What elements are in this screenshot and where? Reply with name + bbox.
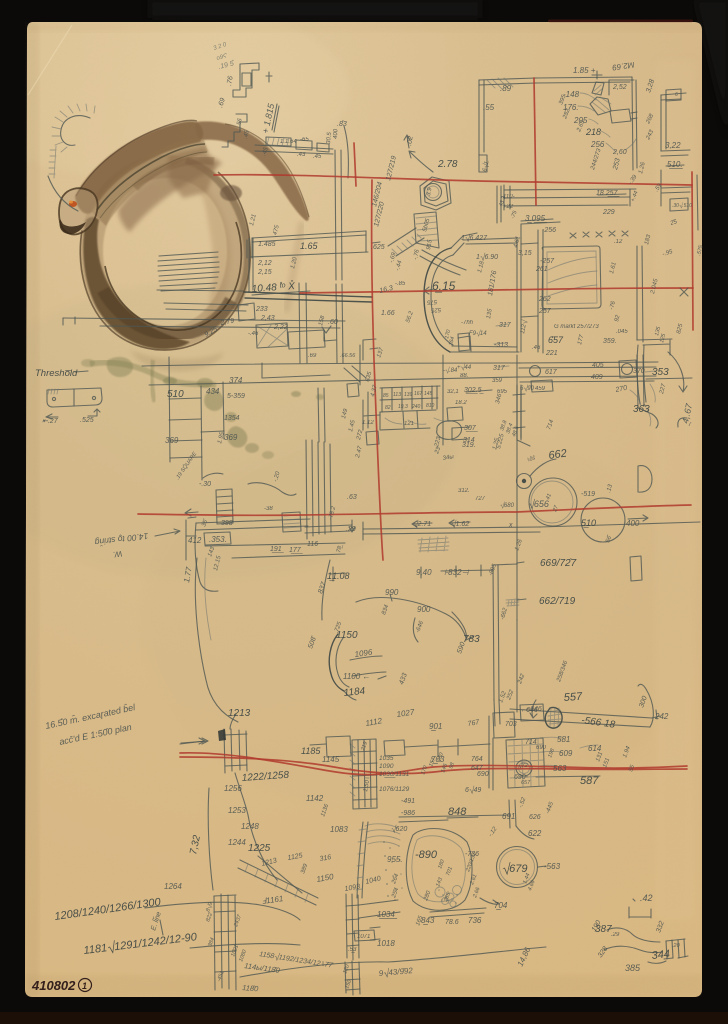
svg-text:2,12: 2,12 xyxy=(257,260,272,267)
svg-text:317: 317 xyxy=(493,365,506,372)
svg-text:W.: W. xyxy=(112,549,123,559)
svg-text:1076/1129: 1076/1129 xyxy=(379,786,410,793)
svg-text:1̲1.08: 1̲1.08 xyxy=(327,571,350,581)
svg-text:7̲04: 7̲04 xyxy=(494,901,508,910)
svg-text:510: 510 xyxy=(167,389,184,400)
svg-text:233: 233 xyxy=(255,306,268,313)
svg-text:369: 369 xyxy=(224,433,238,442)
svg-text:3̲0̲2̲.5̲: 3̲0̲2̲.5̲ xyxy=(464,387,485,394)
svg-text:1.66: 1.66 xyxy=(381,310,395,317)
svg-text:955.: 955. xyxy=(387,855,403,864)
svg-text:⊦832⊣: ⊦832⊣ xyxy=(444,568,470,577)
svg-text:.8̊3: .8̊3 xyxy=(337,120,347,128)
svg-text:-.46: -.46 xyxy=(248,331,259,337)
svg-text:257: 257 xyxy=(538,308,552,315)
svg-text:218: 218 xyxy=(585,127,601,137)
svg-text:1100 ←: 1100 ← xyxy=(343,672,370,681)
svg-text:2,22: 2,22 xyxy=(273,324,288,331)
svg-text:8̲43: 8̲43 xyxy=(421,916,435,925)
svg-text:1.65: 1.65 xyxy=(300,241,319,251)
svg-text:10̲3̲0̲/1131: 10̲3̲0̲/1131 xyxy=(379,771,410,778)
svg-text:1⎷6.427: 1⎷6.427 xyxy=(461,233,488,243)
svg-text:.29: .29 xyxy=(611,932,620,938)
svg-text:⎷620: ⎷620 xyxy=(391,824,407,834)
svg-text:410802: 410802 xyxy=(31,978,76,993)
svg-text:764: 764 xyxy=(471,756,483,763)
svg-text:1̲0̲3̲4̲: 1̲0̲3̲4̲ xyxy=(377,910,398,919)
svg-text:.525: .525 xyxy=(80,417,94,424)
svg-text:662: 662 xyxy=(548,448,568,462)
svg-text:359: 359 xyxy=(492,378,503,384)
svg-text:1: 1 xyxy=(82,981,87,991)
svg-text:.5̲3: .5̲3 xyxy=(348,947,357,953)
svg-text:9,40: 9,40 xyxy=(416,568,432,577)
svg-text:.12: .12 xyxy=(614,239,623,245)
svg-text:.42: .42 xyxy=(640,893,653,903)
svg-text:36̑3: 36̑3 xyxy=(633,404,650,415)
svg-text:409: 409 xyxy=(591,374,603,381)
svg-text:5̲10: 5̲10 xyxy=(581,518,596,528)
svg-text:3,15: 3,15 xyxy=(518,250,532,257)
svg-text:1264: 1264 xyxy=(164,882,182,891)
svg-text:369: 369 xyxy=(165,436,179,445)
svg-text:.30⎷.510: .30⎷.510 xyxy=(672,202,692,209)
svg-text:3,22: 3,22 xyxy=(665,141,681,150)
svg-text:.45: .45 xyxy=(313,154,322,160)
svg-text:1354: 1354 xyxy=(224,415,240,422)
svg-text:1.485: 1.485 xyxy=(258,241,276,248)
svg-text:690: 690 xyxy=(536,745,547,751)
svg-text:359.: 359. xyxy=(603,338,617,345)
svg-text:2,60: 2,60 xyxy=(612,149,627,156)
svg-text:6⎷9̑0: 6⎷9̑0 xyxy=(520,384,535,392)
svg-text:-7hh: -7hh xyxy=(461,320,474,326)
svg-text:-256: -256 xyxy=(542,227,556,234)
svg-text:-.30: -.30 xyxy=(199,481,211,488)
svg-text:⎷1.62: ⎷1.62 xyxy=(451,519,469,529)
svg-text:.353.: .353. xyxy=(209,535,227,544)
svg-text:563: 563 xyxy=(553,764,567,773)
svg-text:.625: .625 xyxy=(371,244,385,251)
svg-text:.55: .55 xyxy=(483,103,495,112)
svg-text:-519: -519 xyxy=(581,491,595,498)
svg-text:.66.56: .66.56 xyxy=(340,353,356,359)
svg-text:⇤.27: ⇤.27 xyxy=(42,418,59,425)
svg-text:⌐646: ⌐646 xyxy=(526,706,542,713)
svg-text:990: 990 xyxy=(385,588,399,597)
svg-text:703: 703 xyxy=(505,721,517,728)
svg-text:400: 400 xyxy=(333,128,339,139)
svg-text:662/719: 662/719 xyxy=(539,596,576,607)
svg-text:459: 459 xyxy=(535,386,546,392)
svg-text:1071: 1071 xyxy=(357,934,370,940)
svg-text:Thresho̅ld: Thresho̅ld xyxy=(35,368,78,379)
svg-text:695: 695 xyxy=(497,389,508,395)
svg-text:2,15: 2,15 xyxy=(257,269,272,276)
svg-text:.29: .29 xyxy=(346,526,356,533)
svg-text:1213: 1213 xyxy=(228,708,251,719)
svg-text:900: 900 xyxy=(417,605,431,614)
svg-text:.20: .20 xyxy=(672,943,681,949)
svg-text:5̲1̲0̲.: 5̲1̲0̲. xyxy=(667,160,683,169)
svg-text:-⎷.84: -⎷.84 xyxy=(443,366,458,374)
svg-text:581: 581 xyxy=(557,735,570,744)
svg-text:374: 374 xyxy=(229,376,243,385)
svg-text:690: 690 xyxy=(477,771,489,778)
svg-text:242: 242 xyxy=(654,712,669,721)
svg-text:-.85: -.85 xyxy=(395,281,406,287)
svg-text:-563: -563 xyxy=(544,862,561,871)
svg-text:-986: -986 xyxy=(401,810,415,817)
svg-text:1244: 1244 xyxy=(228,838,246,847)
svg-text:262: 262 xyxy=(538,296,551,303)
svg-text:.89: .89 xyxy=(500,84,512,93)
svg-text:1090: 1090 xyxy=(379,763,394,770)
svg-text:587: 587 xyxy=(580,775,599,787)
svg-text:353: 353 xyxy=(652,367,669,378)
svg-text:412: 412 xyxy=(188,536,202,545)
svg-text:-65: -65 xyxy=(300,137,309,143)
svg-text:+⎷44: +⎷44 xyxy=(457,363,472,371)
svg-text:1256: 1256 xyxy=(224,784,242,793)
svg-text:2.78: 2.78 xyxy=(437,159,458,170)
svg-text:116: 116 xyxy=(307,541,318,548)
svg-text:727: 727 xyxy=(475,496,486,502)
svg-text:32,1: 32,1 xyxy=(447,389,459,395)
svg-text:82: 82 xyxy=(385,405,391,411)
svg-text:167: 167 xyxy=(414,391,423,397)
svg-text:3̲.0̲9̲5̲: 3̲.0̲9̲5̲ xyxy=(525,214,548,223)
svg-text:2,43: 2,43 xyxy=(260,315,275,322)
svg-text:434: 434 xyxy=(206,387,220,396)
svg-text:6⎷49: 6⎷49 xyxy=(465,785,481,795)
svg-text:1248: 1248 xyxy=(241,822,259,831)
svg-text:736: 736 xyxy=(468,916,482,925)
svg-text:1225: 1225 xyxy=(248,843,271,854)
svg-text:F9⎷14: F9⎷14 xyxy=(469,329,487,337)
svg-text:⎷680: ⎷680 xyxy=(500,501,515,509)
svg-text:9̲01: 9̲01 xyxy=(429,722,442,731)
svg-text:229: 229 xyxy=(602,209,615,216)
svg-text:669/72̑7: 669/72̑7 xyxy=(540,558,577,569)
svg-text:400: 400 xyxy=(626,519,640,528)
svg-text:1145: 1145 xyxy=(322,755,340,764)
svg-text:-313: -313 xyxy=(494,342,508,349)
svg-text:.60: .60 xyxy=(328,319,338,326)
svg-text:118̑0: 118̑0 xyxy=(242,983,260,993)
svg-text:145: 145 xyxy=(424,391,433,397)
svg-text:139: 139 xyxy=(404,392,413,398)
svg-text:1184: 1184 xyxy=(343,686,366,699)
svg-text:1⎷6.90: 1⎷6.90 xyxy=(476,252,498,262)
svg-text:1.12: 1.12 xyxy=(362,420,374,426)
svg-text:622: 622 xyxy=(528,829,542,838)
svg-text:1.85 +: 1.85 + xyxy=(573,66,596,75)
svg-text:.63: .63 xyxy=(347,494,357,501)
svg-text:.69: .69 xyxy=(308,353,317,359)
svg-text:626: 626 xyxy=(529,814,541,821)
svg-text:G markt 257/273: G markt 257/273 xyxy=(554,324,599,330)
svg-text:-890: -890 xyxy=(415,849,438,861)
svg-text:.46: .46 xyxy=(532,345,541,351)
svg-text:30.5: 30.5 xyxy=(326,131,333,144)
svg-text:1018: 1018 xyxy=(377,939,395,948)
svg-text:6: 6 xyxy=(675,92,678,98)
svg-text:1185: 1185 xyxy=(301,746,321,756)
svg-text:385: 385 xyxy=(625,963,641,973)
svg-text:319.: 319. xyxy=(462,442,476,449)
svg-text:312.: 312. xyxy=(458,488,470,494)
svg-text:121: 121 xyxy=(404,421,414,427)
svg-text:1253: 1253 xyxy=(228,806,246,815)
svg-text:256: 256 xyxy=(590,140,605,149)
svg-text:370: 370 xyxy=(633,368,645,375)
svg-text:398: 398 xyxy=(221,520,233,527)
svg-text:5-359: 5-359 xyxy=(227,393,245,400)
svg-text:240: 240 xyxy=(411,404,421,410)
svg-text:657: 657 xyxy=(521,780,531,786)
svg-text:1.1.64: 1.1.64 xyxy=(280,139,297,145)
svg-text:.43: .43 xyxy=(297,152,306,158)
svg-text:344: 344 xyxy=(651,948,671,962)
svg-text:-491: -491 xyxy=(401,798,415,805)
svg-text:-257: -257 xyxy=(540,258,555,265)
svg-text:113: 113 xyxy=(393,392,401,398)
svg-text:1142: 1142 xyxy=(306,794,324,803)
svg-text:6̲.15: 6̲.15 xyxy=(432,279,456,293)
svg-text:557: 557 xyxy=(563,691,583,704)
svg-text:1083: 1083 xyxy=(330,825,348,834)
svg-text:18.2: 18.2 xyxy=(455,400,467,406)
svg-text:1150: 1150 xyxy=(336,630,358,641)
svg-text:85: 85 xyxy=(383,393,389,399)
svg-text:x: x xyxy=(508,522,513,529)
svg-text:317: 317 xyxy=(499,322,512,329)
svg-text:1̏8 2̲5̲7̲: 1̏8 2̲5̲7̲ xyxy=(596,190,620,197)
svg-text:2̏21: 2̏21 xyxy=(545,350,558,357)
svg-text:261: 261 xyxy=(535,266,548,273)
svg-text:⎷679: ⎷679 xyxy=(502,862,528,876)
svg-text:78.6: 78.6 xyxy=(445,919,459,926)
svg-text:19,3: 19,3 xyxy=(398,404,408,410)
svg-text:617: 617 xyxy=(545,369,558,376)
svg-text:⎷72: ⎷72 xyxy=(518,762,528,769)
svg-text:⎷2.71: ⎷2.71 xyxy=(413,519,431,529)
svg-text:405: 405 xyxy=(592,362,604,369)
svg-text:8̑8.: 8̑8. xyxy=(460,373,468,379)
svg-text:848: 848 xyxy=(448,806,467,818)
svg-text:525: 525 xyxy=(430,306,441,313)
svg-text:575: 575 xyxy=(426,298,437,305)
svg-text:-38: -38 xyxy=(264,506,273,512)
svg-text:691: 691 xyxy=(502,812,515,821)
svg-text:810: 810 xyxy=(426,403,435,409)
svg-text:6̏57: 6̏57 xyxy=(548,335,564,345)
svg-text:.045: .045 xyxy=(616,329,628,335)
svg-text:1035: 1035 xyxy=(379,755,394,762)
svg-text:609: 609 xyxy=(559,749,573,758)
svg-text:2,52: 2,52 xyxy=(612,84,627,91)
